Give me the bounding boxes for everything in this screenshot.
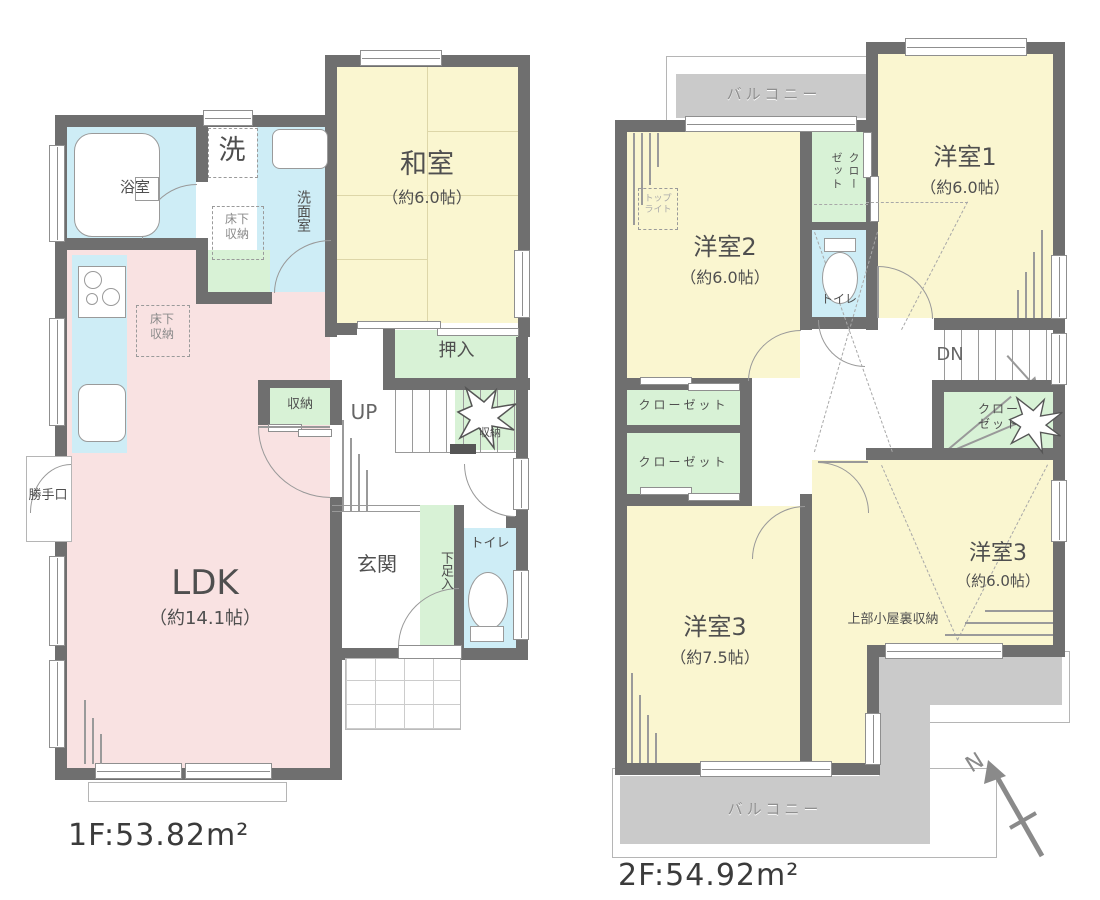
tatami-line bbox=[427, 195, 428, 323]
label-closet-right: クローゼット bbox=[974, 402, 1024, 432]
wall-hatch bbox=[965, 622, 1053, 624]
door-leaf bbox=[877, 266, 879, 318]
wall-hatch bbox=[639, 695, 641, 763]
room-size-room3b: （約6.0帖） bbox=[938, 572, 1058, 591]
wall bbox=[627, 425, 740, 433]
room-size-room3a: （約7.5帖） bbox=[630, 648, 800, 668]
sliding-door bbox=[640, 487, 692, 495]
window bbox=[685, 116, 857, 132]
wall bbox=[932, 380, 944, 460]
label-stairs-up: UP bbox=[340, 400, 388, 425]
label-oshiire: 押入 bbox=[395, 340, 518, 363]
terrace-step bbox=[88, 782, 287, 802]
room-label-toilet-2f: トイレ bbox=[812, 292, 866, 307]
wall-hatch bbox=[1041, 230, 1043, 318]
toilet-tank-icon bbox=[470, 626, 504, 642]
attic-dashed-line bbox=[866, 202, 968, 203]
window bbox=[885, 643, 1003, 659]
step-line bbox=[332, 505, 420, 506]
stove-burner-icon bbox=[84, 271, 102, 289]
room-label-room3a: 洋室3 bbox=[630, 612, 800, 642]
sliding-door bbox=[863, 132, 872, 178]
label-balcony-bottom: バルコニー bbox=[620, 800, 930, 819]
sliding-door bbox=[357, 321, 441, 329]
wall-hatch bbox=[649, 133, 651, 185]
understairs-burst-icon bbox=[452, 386, 522, 452]
compass-n-label: N bbox=[961, 748, 988, 778]
wall bbox=[812, 222, 866, 230]
wall-hatch bbox=[1017, 290, 1019, 318]
wall bbox=[740, 378, 752, 506]
wall-hatch bbox=[641, 133, 643, 205]
window bbox=[49, 660, 65, 748]
label-back-door: 勝手口 bbox=[22, 488, 74, 504]
wall bbox=[800, 120, 812, 330]
toilet-bowl-icon bbox=[468, 572, 508, 630]
wall bbox=[205, 292, 272, 304]
window bbox=[865, 713, 881, 765]
door-arc-toilet-2f bbox=[818, 320, 865, 367]
label-balcony-top: バルコニー bbox=[676, 85, 872, 104]
window bbox=[49, 145, 65, 242]
label-attic-storage: 上部小屋裏収納 bbox=[812, 612, 974, 628]
entrance-porch bbox=[345, 658, 461, 730]
stove-burner-icon bbox=[86, 293, 98, 305]
room-label-ldk: LDK bbox=[110, 562, 300, 605]
window bbox=[513, 458, 529, 510]
sliding-door bbox=[688, 383, 740, 391]
wall bbox=[55, 238, 208, 250]
floor-plan-canvas: 浴室 洗 洗面室 床下収納 床下収納 和室 （約6.0帖） 押入 収納 UP 収… bbox=[0, 0, 1100, 900]
wall-hatch bbox=[1033, 252, 1035, 318]
door-leaf bbox=[258, 426, 330, 428]
wall bbox=[325, 323, 357, 335]
sliding-door bbox=[688, 493, 740, 501]
balcony-right bbox=[879, 705, 930, 777]
room-label-bath: 浴室 bbox=[100, 178, 170, 197]
wall bbox=[454, 516, 464, 528]
floor-area-2f: 2F:54.92m² bbox=[618, 858, 799, 893]
balcony-right bbox=[879, 657, 1062, 705]
door-arc-toilet bbox=[464, 464, 515, 517]
label-closet-left-2: クローゼット bbox=[631, 455, 736, 470]
window bbox=[49, 318, 65, 426]
toilet-tank-icon bbox=[824, 238, 856, 252]
window bbox=[513, 570, 529, 640]
wall bbox=[506, 516, 528, 528]
window bbox=[1051, 480, 1067, 542]
window bbox=[360, 50, 442, 66]
window bbox=[1051, 255, 1067, 319]
sliding-door bbox=[870, 176, 879, 222]
room-size-washitsu: （約6.0帖） bbox=[362, 188, 492, 208]
wall-hatch bbox=[657, 133, 659, 167]
wall-hatch bbox=[655, 733, 657, 763]
wall bbox=[934, 318, 1065, 330]
tatami-line bbox=[337, 259, 427, 260]
sliding-door bbox=[437, 328, 519, 336]
label-toplight: トップライト bbox=[641, 194, 675, 217]
step-line bbox=[332, 511, 420, 512]
stove-burner-icon bbox=[102, 288, 120, 306]
window bbox=[49, 556, 65, 646]
room-label-genkan: 玄関 bbox=[340, 552, 414, 577]
wall-hatch bbox=[92, 718, 94, 764]
wall-hatch bbox=[100, 734, 102, 764]
room-label-room1: 洋室1 bbox=[880, 142, 1050, 172]
label-underfloor-storage: 床下収納 bbox=[147, 312, 177, 342]
entrance-door bbox=[398, 645, 462, 659]
wall-hatch bbox=[350, 438, 352, 512]
room-size-room1: （約6.0帖） bbox=[880, 178, 1050, 198]
tatami-line bbox=[427, 131, 518, 132]
window bbox=[203, 110, 253, 126]
label-closet-vertical: クローゼット bbox=[822, 148, 862, 194]
sliding-door bbox=[640, 377, 692, 385]
room-label-washroom: 洗面室 bbox=[283, 182, 311, 240]
wall-hatch bbox=[342, 420, 344, 512]
wall bbox=[325, 55, 337, 337]
wall-hatch bbox=[366, 470, 368, 512]
wall-hatch bbox=[945, 634, 1053, 636]
window bbox=[700, 761, 832, 777]
wall bbox=[460, 648, 528, 660]
wall-hatch bbox=[1025, 272, 1027, 318]
room-label-washitsu: 和室 bbox=[362, 148, 492, 182]
window bbox=[95, 763, 182, 779]
wall-hatch bbox=[647, 715, 649, 763]
sink-icon bbox=[272, 129, 328, 169]
label-understairs-storage: 収納 bbox=[468, 426, 512, 440]
compass-icon: N bbox=[958, 736, 1070, 866]
room-label-toilet-1f: トイレ bbox=[462, 536, 518, 552]
wall-hatch bbox=[84, 700, 86, 764]
wall-hatch bbox=[631, 673, 633, 763]
label-stairs-dn: DN bbox=[928, 344, 972, 367]
room-label-laundry: 洗 bbox=[208, 134, 256, 168]
window bbox=[1051, 333, 1067, 385]
wall-hatch bbox=[985, 610, 1053, 612]
wall bbox=[330, 497, 342, 768]
wall-hatch bbox=[358, 454, 360, 512]
wall bbox=[944, 380, 1053, 392]
room-label-room3b: 洋室3 bbox=[938, 540, 1058, 568]
label-closet-left-1: クローゼット bbox=[631, 398, 736, 413]
wall bbox=[258, 380, 270, 425]
window bbox=[185, 763, 272, 779]
closet-dashed-line bbox=[814, 204, 868, 205]
label-hall-closet: 収納 bbox=[272, 397, 328, 413]
wall bbox=[615, 120, 627, 775]
room-size-room2: （約6.0帖） bbox=[640, 268, 810, 288]
label-shoe-storage: 下足入 bbox=[421, 538, 453, 602]
door-leaf bbox=[818, 461, 868, 463]
floor-area-1f: 1F:53.82m² bbox=[68, 818, 249, 853]
wall-hatch bbox=[633, 133, 635, 225]
room-size-ldk: （約14.1帖） bbox=[110, 608, 300, 631]
room-label-room2: 洋室2 bbox=[640, 232, 810, 262]
label-underfloor-storage: 床下収納 bbox=[222, 212, 252, 242]
wall bbox=[196, 127, 208, 182]
wall bbox=[55, 115, 330, 127]
window bbox=[514, 250, 530, 318]
window bbox=[905, 38, 1027, 56]
kitchen-sink-icon bbox=[78, 384, 126, 442]
